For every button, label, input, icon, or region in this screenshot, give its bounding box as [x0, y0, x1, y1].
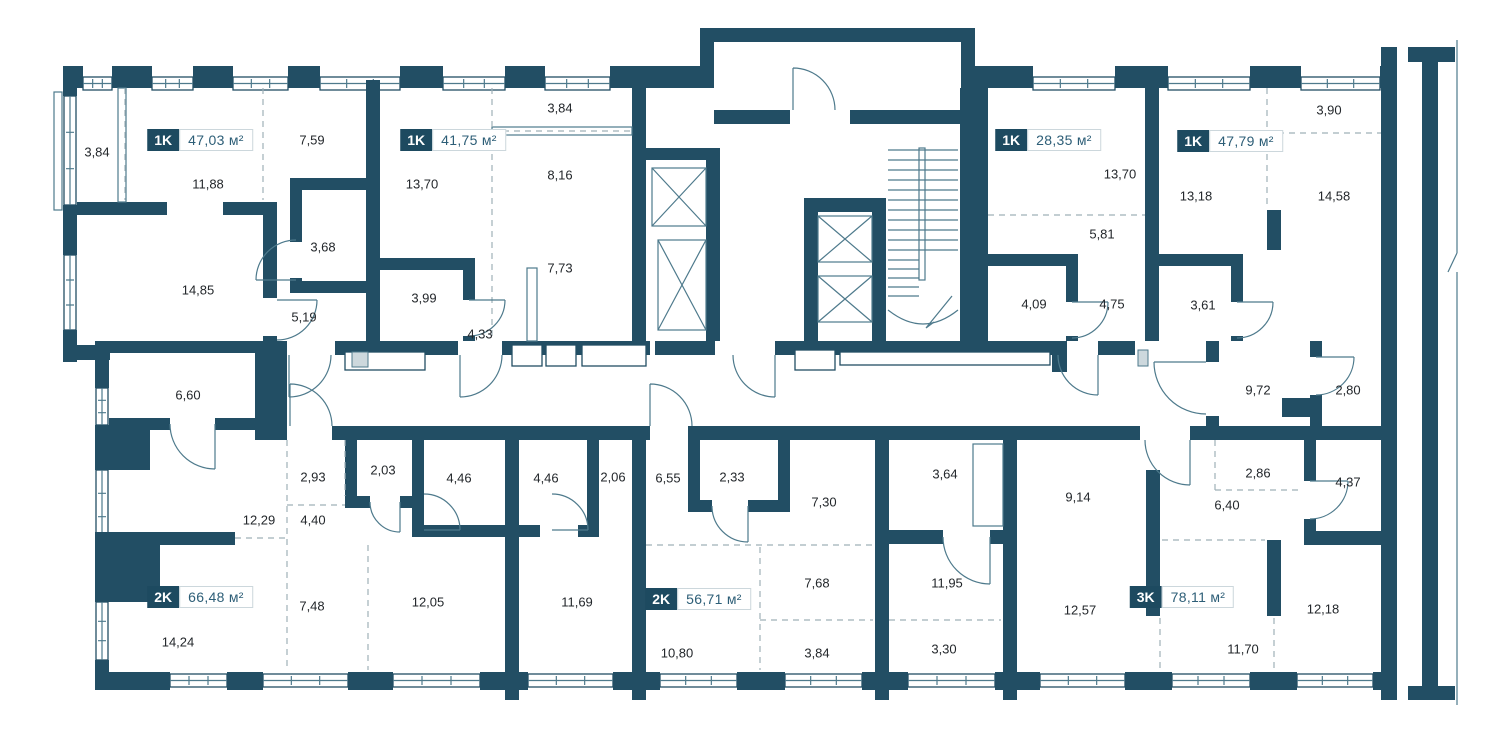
room-area-label: 3,99 [411, 291, 436, 306]
room-area-label: 3,64 [932, 467, 957, 482]
room-area-label: 4,75 [1099, 297, 1124, 312]
room-area-label: 5,19 [291, 310, 316, 325]
apartment-badge: 3K78,11 м² [1130, 586, 1234, 608]
room-divider-dashed-layer [125, 88, 1381, 670]
room-area-label: 13,70 [1104, 167, 1137, 182]
room-area-label: 11,95 [931, 576, 963, 591]
room-area-label: 3,68 [310, 240, 335, 255]
apartment-badge: 1K47,79 м² [1177, 130, 1283, 152]
room-area-label: 6,55 [655, 471, 680, 486]
room-area-label: 2,06 [600, 470, 625, 485]
apartment-type: 1K [147, 129, 179, 151]
room-area-label: 14,58 [1318, 189, 1351, 204]
room-area-label: 8,16 [547, 168, 572, 183]
apartment-area: 56,71 м² [677, 588, 751, 610]
room-area-label: 12,29 [243, 513, 276, 528]
apartment-type: 2K [645, 588, 677, 610]
room-area-label: 2,93 [300, 470, 325, 485]
room-area-label: 11,88 [192, 177, 224, 192]
room-area-label: 2,03 [370, 463, 395, 478]
room-area-label: 3,61 [1190, 298, 1215, 313]
room-area-label: 7,59 [299, 133, 324, 148]
room-area-label: 12,05 [412, 595, 445, 610]
room-area-label: 2,86 [1245, 466, 1270, 481]
room-area-label: 11,69 [561, 595, 593, 610]
room-area-label: 4,46 [533, 471, 558, 486]
room-area-label: 2,80 [1335, 383, 1360, 398]
room-area-label: 7,30 [811, 495, 836, 510]
room-area-label: 9,14 [1065, 490, 1090, 505]
room-area-label: 6,40 [1214, 498, 1239, 513]
room-area-label: 12,18 [1307, 602, 1340, 617]
apartment-type: 2K [147, 586, 179, 608]
room-area-label: 3,90 [1316, 103, 1341, 118]
room-area-label: 14,85 [182, 283, 215, 298]
room-area-label: 10,80 [661, 646, 694, 661]
room-area-label: 12,57 [1064, 603, 1097, 618]
room-area-label: 4,09 [1021, 297, 1046, 312]
room-area-label: 6,60 [175, 388, 200, 403]
apartment-area: 47,79 м² [1209, 130, 1283, 152]
apartment-badge: 2K56,71 м² [645, 588, 751, 610]
apartment-type: 3K [1130, 586, 1162, 608]
apartment-badge: 1K41,75 м² [400, 129, 506, 151]
apartment-badge: 1K47,03 м² [147, 129, 253, 151]
room-area-label: 9,72 [1245, 383, 1270, 398]
apartment-area: 78,11 м² [1162, 586, 1235, 608]
floor-plan: 3,847,5911,8814,853,685,196,6013,703,848… [0, 0, 1500, 739]
room-area-label: 3,84 [547, 101, 572, 116]
room-area-label: 4,33 [467, 327, 492, 342]
wall-layer [63, 28, 1455, 700]
apartment-type: 1K [1177, 130, 1209, 152]
apartment-type: 1K [995, 129, 1027, 151]
room-area-label: 14,24 [162, 635, 195, 650]
apartment-badge: 2K66,48 м² [147, 586, 253, 608]
room-area-label: 7,48 [299, 599, 324, 614]
room-area-label: 4,37 [1335, 475, 1360, 490]
room-area-label: 7,68 [804, 576, 829, 591]
apartment-area: 28,35 м² [1027, 129, 1101, 151]
room-area-label: 3,84 [804, 646, 829, 661]
apartment-type: 1K [400, 129, 432, 151]
apartment-area: 66,48 м² [179, 586, 253, 608]
room-area-label: 11,70 [1227, 642, 1259, 657]
room-area-label: 5,81 [1089, 227, 1114, 242]
room-area-label: 2,33 [719, 470, 744, 485]
apartment-area: 41,75 м² [432, 129, 506, 151]
room-area-label: 4,40 [300, 513, 325, 528]
apartment-area: 47,03 м² [179, 129, 253, 151]
room-area-label: 13,70 [406, 177, 439, 192]
floor-plan-drawing [0, 0, 1500, 739]
room-area-label: 3,30 [931, 642, 956, 657]
room-area-label: 13,18 [1180, 189, 1213, 204]
apartment-badge: 1K28,35 м² [995, 129, 1101, 151]
room-area-label: 3,84 [84, 145, 109, 160]
room-area-label: 4,46 [446, 471, 471, 486]
room-area-label: 7,73 [547, 261, 572, 276]
